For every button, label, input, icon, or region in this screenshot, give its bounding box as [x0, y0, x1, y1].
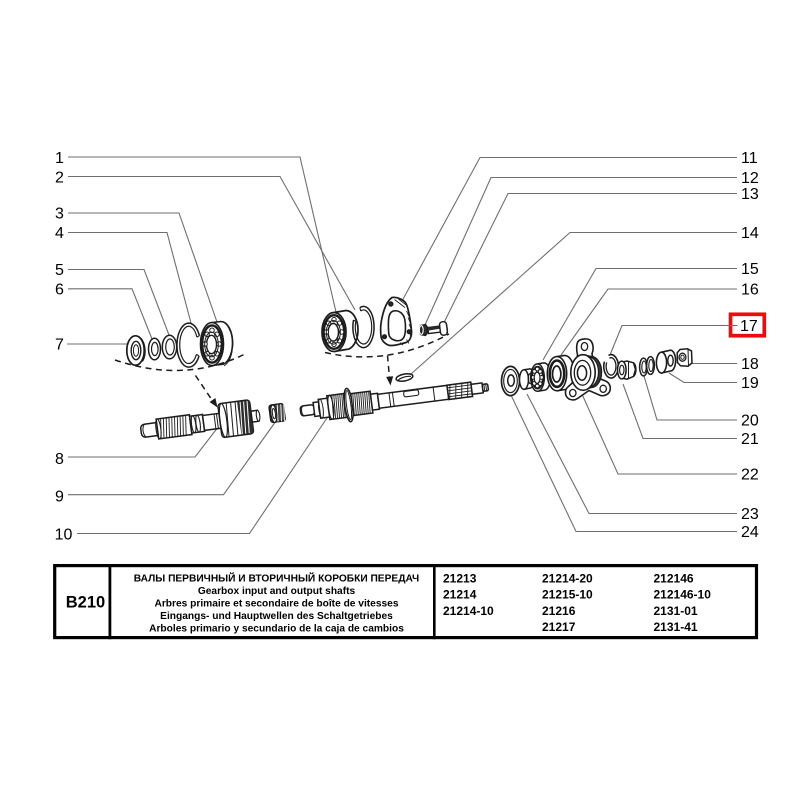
svg-text:21216: 21216: [542, 604, 576, 618]
svg-text:17: 17: [740, 318, 758, 335]
svg-text:2131-41: 2131-41: [654, 620, 698, 634]
svg-text:12: 12: [741, 170, 759, 187]
svg-text:19: 19: [741, 375, 759, 392]
svg-text:13: 13: [741, 186, 759, 203]
svg-text:21214-10: 21214-10: [443, 604, 494, 618]
svg-text:21: 21: [741, 431, 759, 448]
svg-text:9: 9: [55, 489, 64, 506]
svg-text:21214: 21214: [443, 588, 477, 602]
svg-text:21215-10: 21215-10: [542, 588, 593, 602]
svg-text:18: 18: [741, 356, 759, 373]
svg-text:8: 8: [55, 451, 64, 468]
svg-text:3: 3: [55, 206, 64, 223]
svg-text:1: 1: [55, 150, 64, 167]
svg-text:212146: 212146: [654, 572, 694, 586]
svg-text:212146-10: 212146-10: [654, 588, 712, 602]
svg-text:21214-20: 21214-20: [542, 572, 593, 586]
svg-text:ВАЛЫ ПЕРВИЧНЫЙ И ВТОРИЧНЫЙ КО: ВАЛЫ ПЕРВИЧНЫЙ И ВТОРИЧНЫЙ КОРОБКИ ПЕРЕД…: [134, 572, 419, 585]
svg-text:15: 15: [741, 261, 759, 278]
svg-text:B210: B210: [66, 594, 105, 612]
svg-text:5: 5: [55, 262, 64, 279]
svg-text:Gearbox input and output shaft: Gearbox input and output shafts: [198, 586, 356, 597]
svg-text:22: 22: [741, 467, 759, 484]
svg-text:23: 23: [741, 506, 759, 523]
svg-text:20: 20: [741, 413, 759, 430]
svg-text:Arbres primaire et secondaire: Arbres primaire et secondaire de boîte d…: [154, 599, 398, 610]
svg-text:21213: 21213: [443, 572, 477, 586]
svg-text:2: 2: [55, 169, 64, 186]
svg-text:Arboles primario y secundario: Arboles primario y secundario de la caja…: [149, 624, 404, 635]
svg-text:16: 16: [741, 282, 759, 299]
svg-text:2131-01: 2131-01: [654, 604, 698, 618]
svg-text:21217: 21217: [542, 620, 576, 634]
svg-text:10: 10: [55, 526, 73, 543]
svg-text:24: 24: [741, 524, 759, 541]
svg-text:14: 14: [741, 225, 759, 242]
svg-text:6: 6: [55, 281, 64, 298]
svg-text:7: 7: [55, 337, 64, 354]
svg-text:Eingangs- und Hauptwellen des: Eingangs- und Hauptwellen des Schaltgetr…: [160, 611, 393, 622]
svg-text:11: 11: [741, 150, 758, 167]
svg-text:4: 4: [55, 225, 64, 242]
